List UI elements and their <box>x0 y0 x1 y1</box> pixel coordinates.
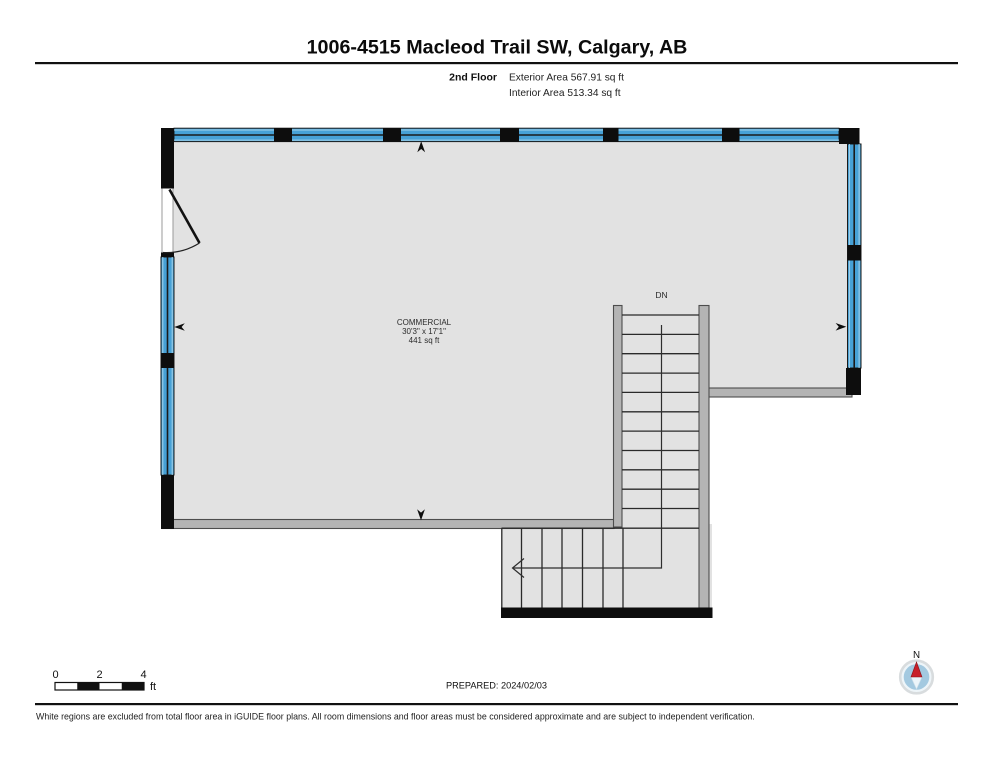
svg-text:DN: DN <box>655 290 667 300</box>
svg-text:COMMERCIAL: COMMERCIAL <box>397 318 452 327</box>
svg-text:Interior Area 513.34 sq ft: Interior Area 513.34 sq ft <box>509 88 621 99</box>
svg-text:2nd Floor: 2nd Floor <box>449 72 497 84</box>
svg-text:4: 4 <box>140 669 146 681</box>
svg-text:ft: ft <box>150 681 156 693</box>
svg-text:White regions are excluded fro: White regions are excluded from total fl… <box>36 712 755 722</box>
svg-text:441 sq ft: 441 sq ft <box>409 336 440 345</box>
svg-text:1006-4515 Macleod Trail SW, Ca: 1006-4515 Macleod Trail SW, Calgary, AB <box>307 36 688 58</box>
svg-text:30'3" x 17'1": 30'3" x 17'1" <box>402 327 446 336</box>
svg-text:Exterior Area 567.91 sq ft: Exterior Area 567.91 sq ft <box>509 73 624 84</box>
svg-text:N: N <box>913 650 920 661</box>
svg-text:2: 2 <box>96 669 102 681</box>
svg-text:0: 0 <box>52 669 58 681</box>
svg-text:PREPARED: 2024/02/03: PREPARED: 2024/02/03 <box>446 681 547 691</box>
